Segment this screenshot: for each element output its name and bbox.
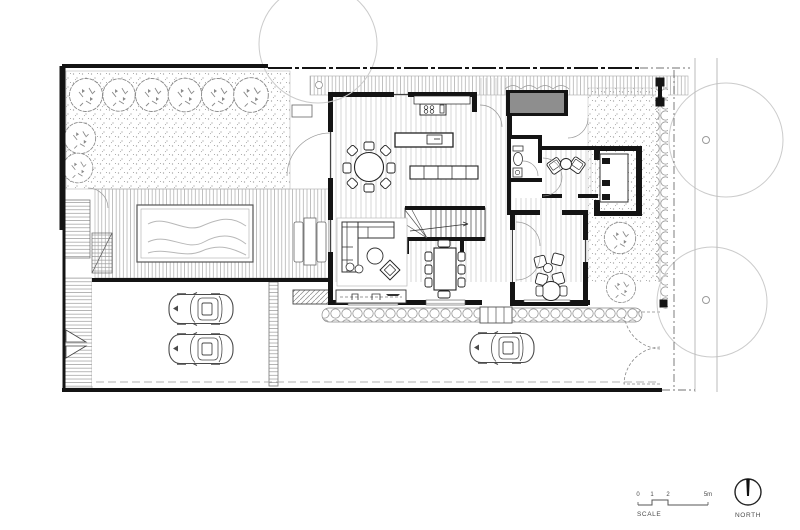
downpipe	[316, 82, 323, 89]
pouf	[346, 263, 354, 271]
scale-tick-0: 0	[636, 492, 640, 498]
street-tree-icon	[669, 83, 783, 197]
sink-icon	[427, 135, 442, 144]
fence-post	[656, 78, 664, 86]
floorboards-sitting	[542, 150, 596, 198]
coffee-table	[561, 159, 572, 170]
scale-tick-1: 1	[650, 492, 654, 498]
tv-joinery	[336, 290, 406, 303]
sun-lounger	[317, 222, 326, 262]
east-hedge	[656, 87, 668, 309]
overhead-cabinets	[414, 96, 470, 104]
door-swing-icon	[287, 133, 330, 176]
side-table	[544, 264, 553, 273]
planter	[293, 290, 329, 304]
fence-post	[660, 300, 667, 307]
scale-bar-icon: 0 1 2 5m SCALE	[636, 492, 712, 518]
scale-label: SCALE	[637, 511, 661, 518]
tree-trunk	[703, 297, 710, 304]
planter-box	[292, 105, 312, 117]
scale-tick-5m: 5m	[704, 492, 712, 498]
wc-icon	[514, 153, 523, 166]
pouf	[355, 265, 363, 273]
powder-room	[511, 139, 538, 178]
sun-lounger	[294, 222, 303, 262]
round-table	[542, 282, 561, 301]
kitchen-island	[395, 133, 453, 147]
tree-trunk	[703, 137, 710, 144]
pool	[137, 205, 253, 262]
stairs-icon	[64, 200, 90, 258]
side-table	[367, 248, 383, 264]
site-plan-drawing: 0 1 2 5m SCALE NORTH	[0, 0, 800, 530]
bench-cabinets	[410, 166, 478, 179]
street-footpath	[695, 58, 717, 392]
scale-tick-2: 2	[666, 492, 670, 498]
garage-wall	[269, 282, 278, 386]
deck-garage-wall	[92, 278, 330, 282]
stairs-icon	[405, 206, 485, 241]
floor-plan-sheet: 0 1 2 5m SCALE NORTH	[0, 0, 800, 530]
living-room	[336, 218, 407, 303]
dining-table-round	[343, 142, 395, 192]
north-label: NORTH	[735, 512, 761, 519]
fence-post	[656, 98, 664, 106]
north-arrow-icon: NORTH	[735, 479, 761, 520]
entry-store-block	[506, 90, 568, 116]
deck-table	[304, 218, 316, 265]
cistern	[513, 146, 523, 151]
door-swing-icon	[568, 118, 588, 138]
